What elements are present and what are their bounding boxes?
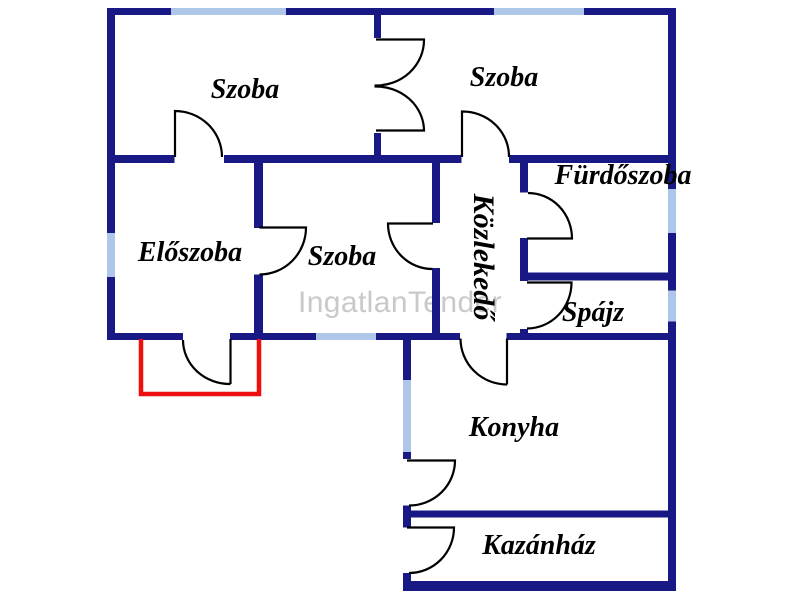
svg-text:Kazánház: Kazánház: [481, 530, 596, 561]
svg-text:Szoba: Szoba: [308, 241, 376, 272]
svg-text:Előszoba: Előszoba: [137, 237, 242, 268]
svg-text:Közlekedő: Közlekedő: [467, 193, 500, 323]
svg-text:Szoba: Szoba: [211, 74, 279, 105]
svg-text:Konyha: Konyha: [468, 412, 559, 443]
svg-text:Szoba: Szoba: [470, 62, 538, 93]
svg-text:Fürdőszoba: Fürdőszoba: [554, 160, 692, 191]
svg-text:Spájz: Spájz: [562, 297, 624, 328]
